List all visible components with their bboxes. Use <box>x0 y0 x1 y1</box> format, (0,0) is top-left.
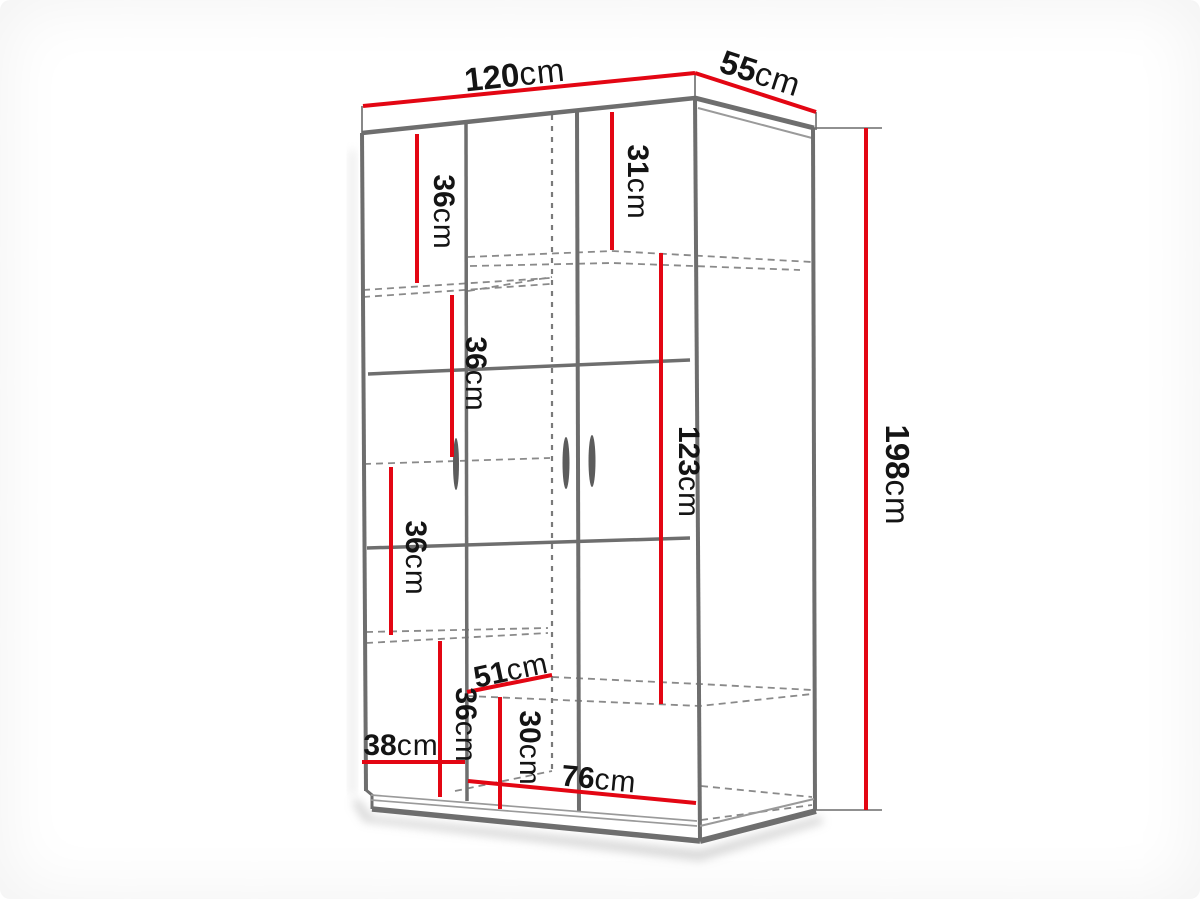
label-right-inner-width: 76cm <box>560 760 638 800</box>
door-gap-line <box>577 111 579 812</box>
middle-door-handle <box>563 437 570 489</box>
side-plinth-line <box>700 799 814 826</box>
label-left-top-shelf: 36cm <box>427 174 460 249</box>
left-shelf3-back-dashed <box>366 633 548 643</box>
label-right-top-shelf: 31cm <box>621 144 654 219</box>
label-left-bottom-shelf: 36cm <box>449 687 482 762</box>
dimension-labels: 120cm 55cm 198cm 36cm 31cm 36cm 36cm 36c… <box>363 43 916 800</box>
top-right-shelf-front-dashed <box>468 251 812 262</box>
diagram-canvas: 120cm 55cm 198cm 36cm 31cm 36cm 36cm 36c… <box>0 0 1200 899</box>
top-right-shelf-back-dashed <box>470 263 800 270</box>
right-door-handle <box>589 435 596 487</box>
left-shelf1-back-dashed <box>363 284 550 297</box>
left-shelf3-front-dashed <box>366 628 548 632</box>
label-inner-depth: 51cm <box>471 647 552 695</box>
label-left-inner-width: 38cm <box>363 729 438 762</box>
label-total-height: 198cm <box>879 424 916 525</box>
bottom-right-shelf-front-dashed <box>552 677 812 690</box>
top-front-edge <box>362 98 695 133</box>
label-bottom-compartment: 30cm <box>513 710 546 785</box>
bottom-right-shelf-back-dashed <box>467 694 812 706</box>
shelf-depth-diagonal-dashed <box>468 277 552 291</box>
label-hanging-section: 123cm <box>672 426 705 518</box>
front-division-upper <box>368 360 690 374</box>
wardrobe-dimension-diagram: 120cm 55cm 198cm 36cm 31cm 36cm 36cm 36c… <box>0 0 1200 899</box>
label-left-lower-shelf: 36cm <box>399 520 432 595</box>
left-shadow <box>349 150 356 795</box>
side-floor-dashed-upper <box>701 786 812 797</box>
label-left-middle-shelf: 36cm <box>459 336 492 411</box>
left-front-edge <box>362 133 366 791</box>
label-total-width: 120cm <box>462 51 567 99</box>
left-shelf1-front-dashed <box>363 278 550 290</box>
right-back-edge <box>813 128 815 810</box>
